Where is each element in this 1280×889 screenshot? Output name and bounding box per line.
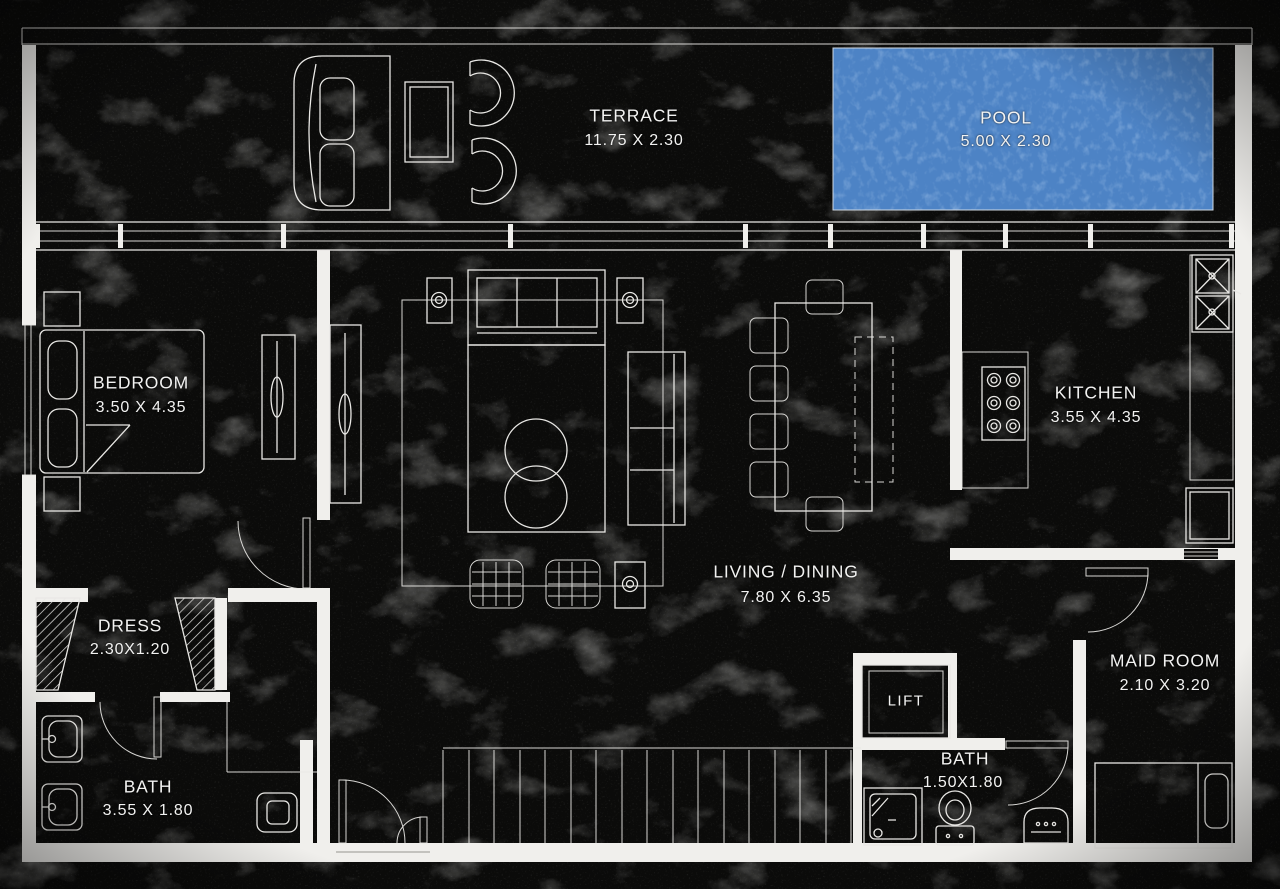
room-dims-bath-service: 1.50X1.80 xyxy=(923,774,1003,792)
room-dims-terrace: 11.75 X 2.30 xyxy=(584,132,683,150)
room-label-maid-room: MAID ROOM xyxy=(1110,651,1220,672)
room-label-bath-service: BATH xyxy=(941,749,990,770)
room-label-kitchen: KITCHEN xyxy=(1055,383,1137,404)
room-label-pool: POOL xyxy=(980,108,1032,129)
room-dims-bedroom: 3.50 X 4.35 xyxy=(96,399,187,417)
room-label-bath-master: BATH xyxy=(124,777,173,798)
room-label-living-dining: LIVING / DINING xyxy=(713,562,858,583)
room-dims-kitchen: 3.55 X 4.35 xyxy=(1051,409,1142,427)
room-dims-dress: 2.30X1.20 xyxy=(90,641,170,659)
room-label-lift: LIFT xyxy=(888,693,925,710)
room-label-terrace: TERRACE xyxy=(589,106,678,127)
room-label-bedroom: BEDROOM xyxy=(93,373,189,394)
room-label-dress: DRESS xyxy=(98,616,162,637)
room-dims-bath-master: 3.55 X 1.80 xyxy=(103,802,194,820)
room-dims-pool: 5.00 X 2.30 xyxy=(961,133,1052,151)
room-dims-maid-room: 2.10 X 3.20 xyxy=(1120,677,1211,695)
floor-plan-page: TERRACE 11.75 X 2.30 POOL 5.00 X 2.30 BE… xyxy=(0,0,1280,889)
room-dims-living-dining: 7.80 X 6.35 xyxy=(741,589,832,607)
